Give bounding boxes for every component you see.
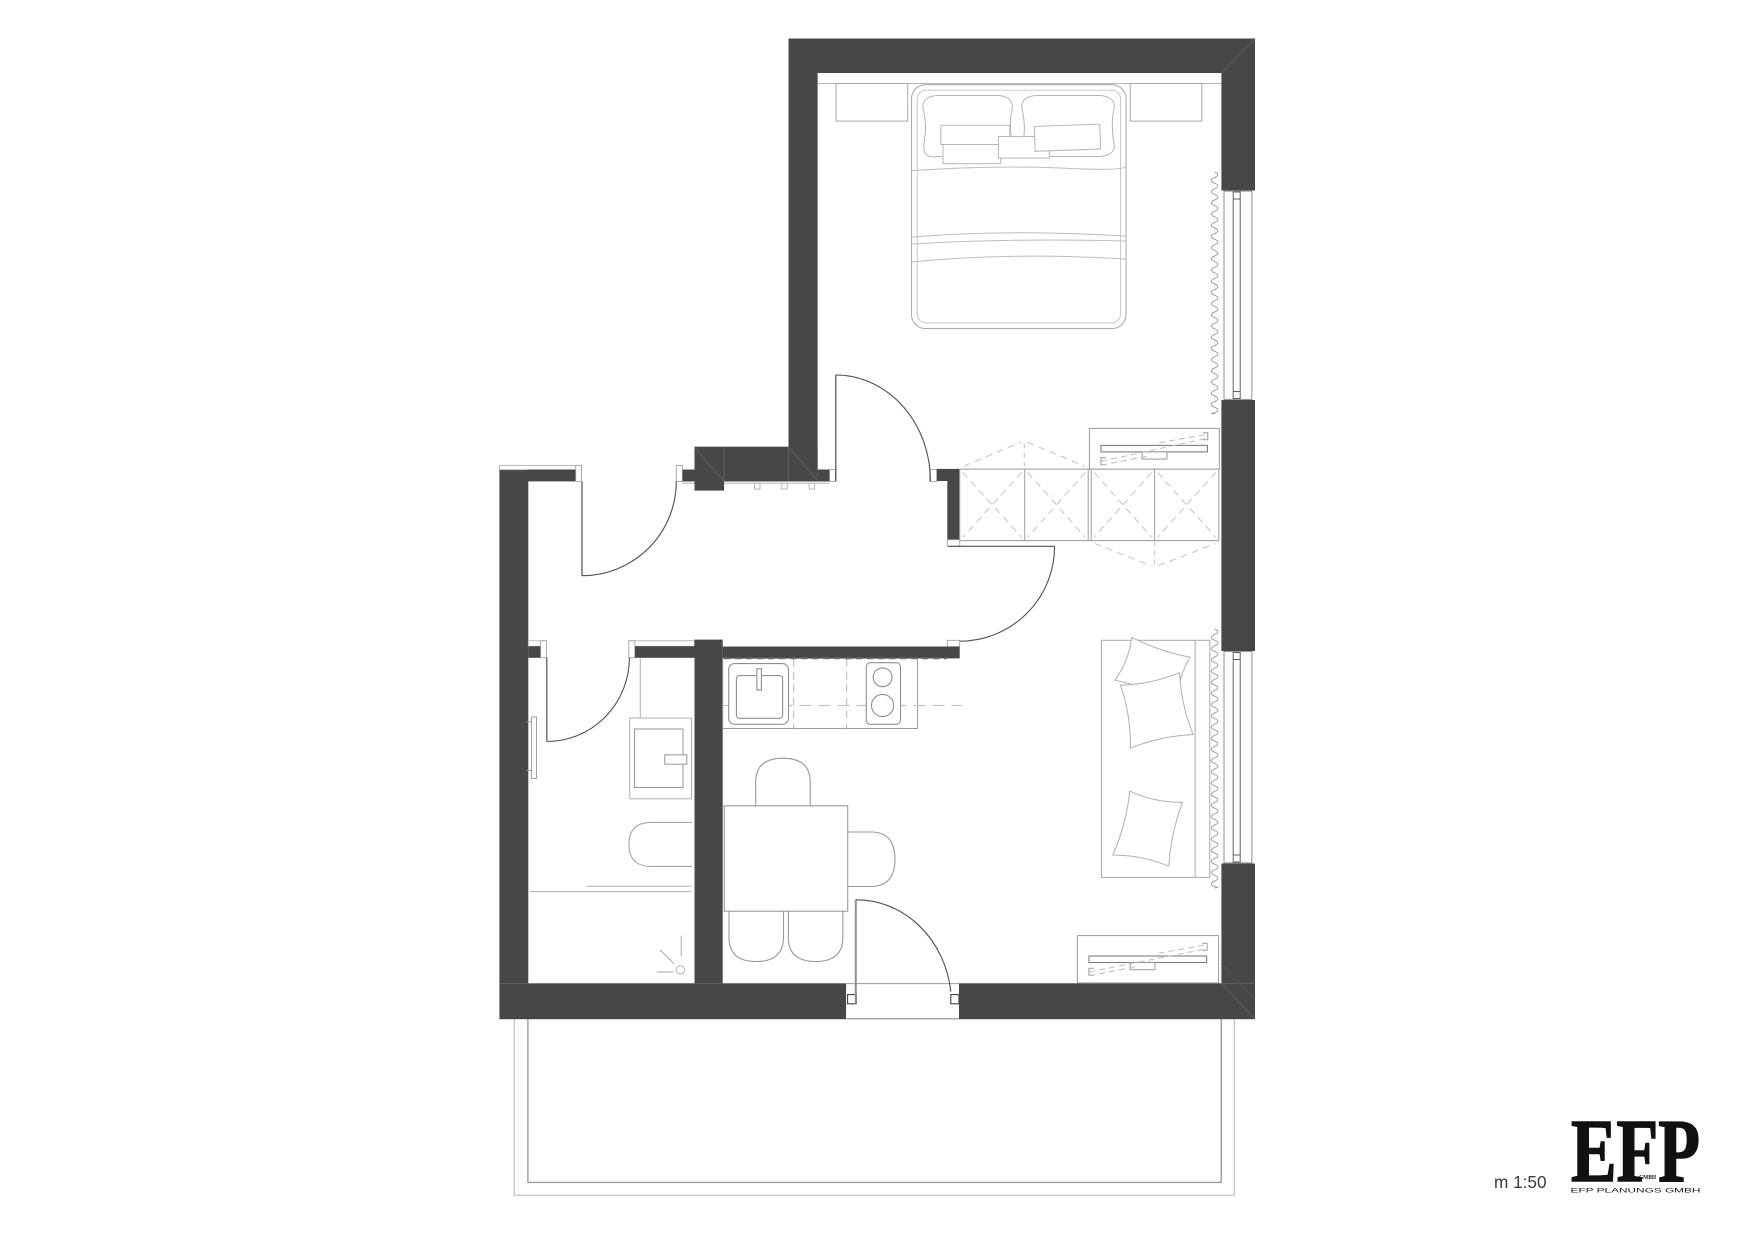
- svg-text:m 1:50: m 1:50: [1494, 1172, 1547, 1192]
- svg-text:GMBH: GMBH: [1639, 1174, 1656, 1181]
- svg-text:EFP: EFP: [1571, 1102, 1700, 1201]
- svg-text:EFP PLANUNGS GMBH: EFP PLANUNGS GMBH: [1571, 1188, 1702, 1195]
